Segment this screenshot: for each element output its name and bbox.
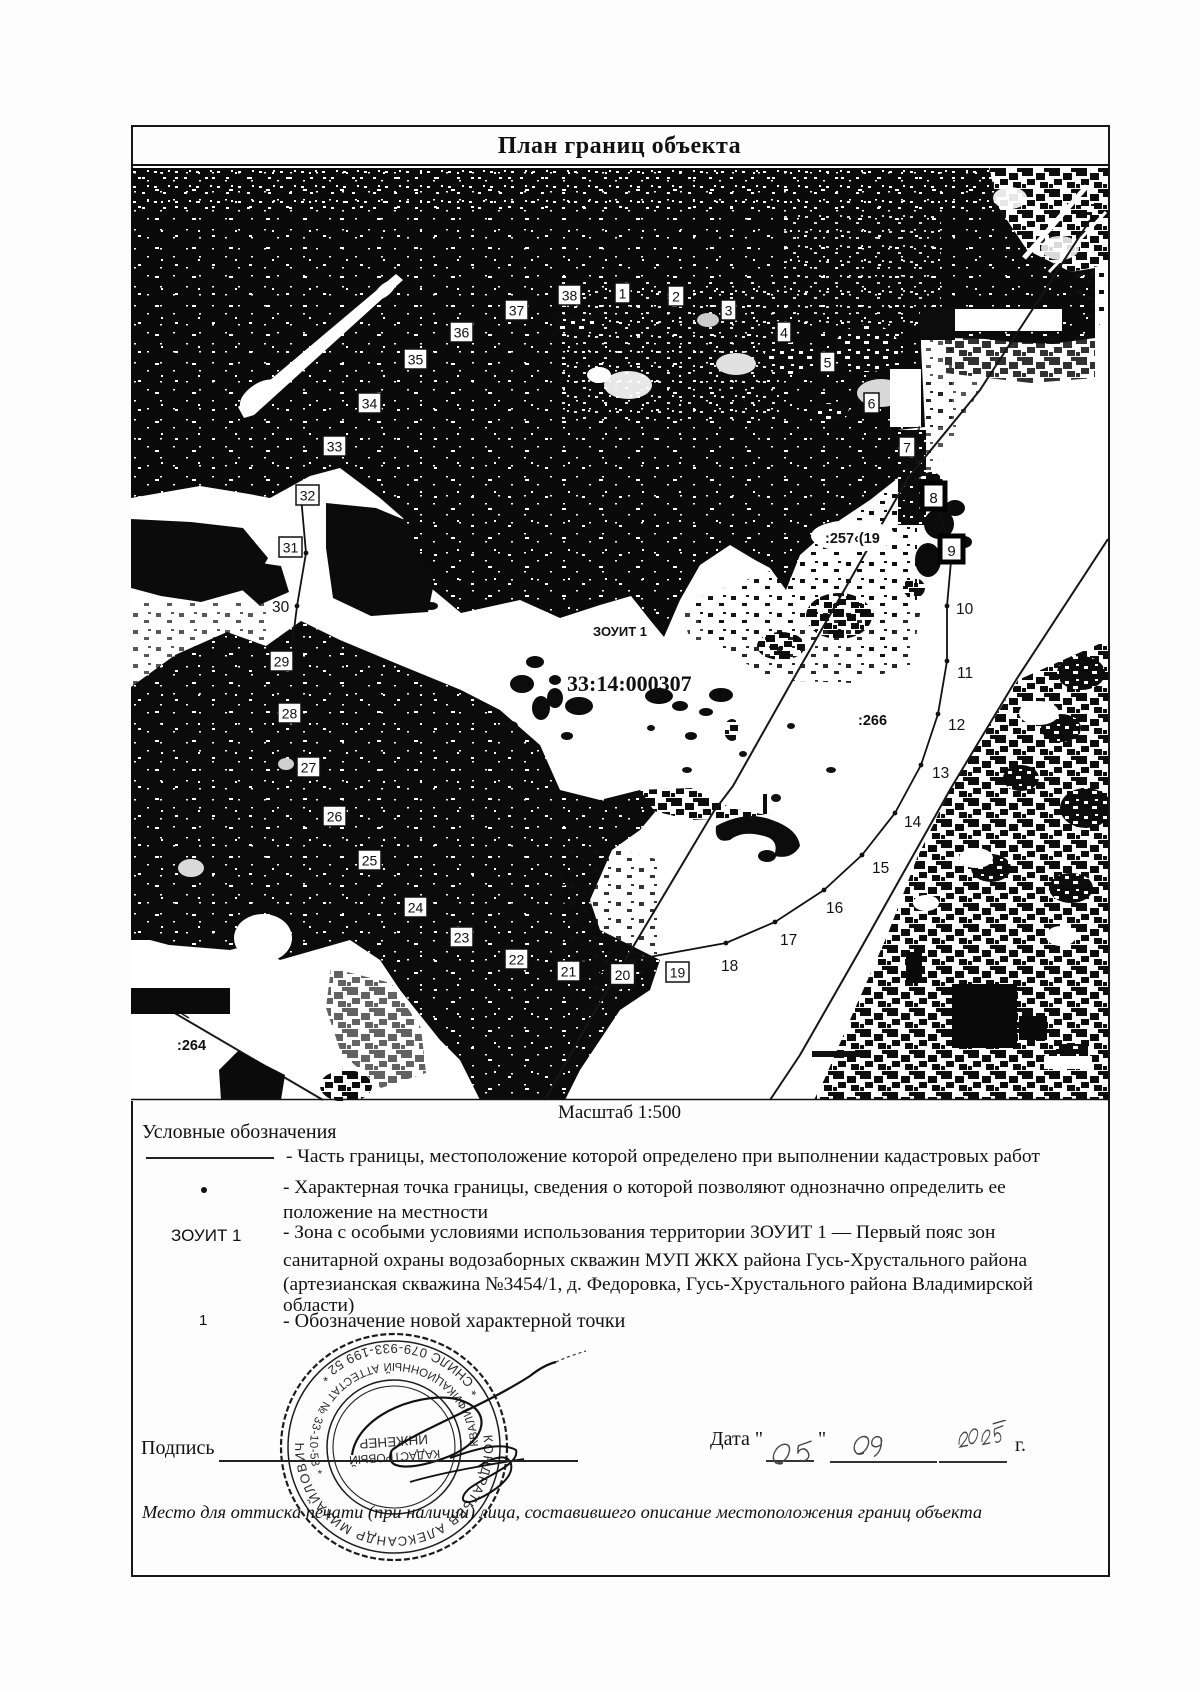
svg-text:31: 31	[283, 540, 299, 556]
svg-text:ЗОУИТ 1: ЗОУИТ 1	[593, 624, 647, 639]
svg-text:8: 8	[929, 490, 937, 507]
svg-text:26: 26	[327, 809, 343, 825]
svg-text:12: 12	[948, 717, 965, 734]
svg-text:23: 23	[454, 930, 470, 946]
svg-text:10: 10	[956, 601, 974, 618]
svg-text:36: 36	[454, 325, 470, 341]
svg-text:29: 29	[274, 654, 290, 670]
svg-text:35: 35	[408, 352, 424, 368]
svg-text:24: 24	[408, 900, 424, 916]
svg-text:33:14:000307: 33:14:000307	[567, 671, 692, 696]
svg-text:6: 6	[868, 396, 876, 412]
svg-text:11: 11	[957, 665, 973, 682]
svg-text:22: 22	[509, 952, 525, 968]
svg-text:4: 4	[780, 325, 788, 341]
svg-text:28: 28	[282, 706, 298, 722]
svg-text:19: 19	[670, 965, 686, 981]
svg-text:30: 30	[272, 599, 290, 616]
svg-text:1: 1	[619, 286, 627, 302]
svg-text:13: 13	[932, 765, 949, 782]
svg-text:33: 33	[327, 439, 343, 455]
svg-text:5: 5	[824, 355, 832, 371]
svg-text::257‹(19: :257‹(19	[825, 531, 880, 547]
svg-text::266: :266	[858, 713, 887, 729]
svg-text:38: 38	[562, 288, 578, 304]
svg-text:20: 20	[615, 967, 631, 983]
svg-text:34: 34	[362, 396, 378, 412]
svg-text:27: 27	[301, 760, 317, 776]
svg-text:7: 7	[903, 440, 911, 456]
svg-text:32: 32	[300, 488, 316, 504]
svg-text:16: 16	[826, 900, 843, 917]
svg-text:37: 37	[509, 303, 525, 319]
svg-text:2: 2	[672, 289, 680, 305]
svg-text:3: 3	[725, 303, 733, 319]
svg-text:14: 14	[904, 814, 922, 831]
svg-text::264: :264	[177, 1038, 206, 1054]
svg-text:25: 25	[362, 853, 378, 869]
svg-text:15: 15	[872, 860, 889, 877]
svg-text:18: 18	[721, 958, 738, 975]
svg-text:17: 17	[780, 932, 797, 949]
svg-text:21: 21	[561, 964, 577, 980]
svg-text:9: 9	[947, 543, 955, 560]
